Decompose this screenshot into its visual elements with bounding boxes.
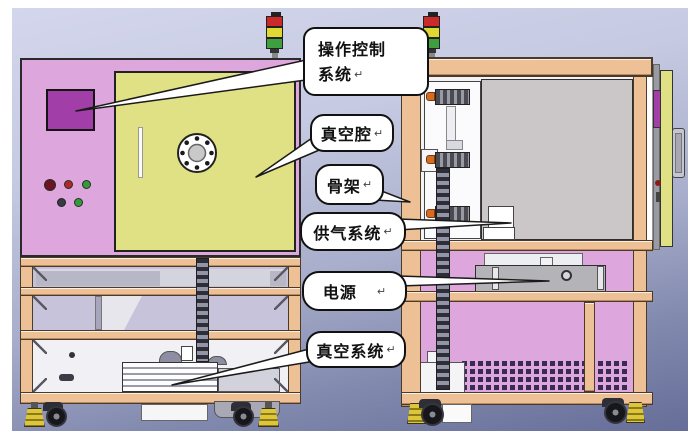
callout-text: 电源 [323,279,357,303]
return-mark: ↵ [363,178,372,191]
figure-machine-diagram: 操作控制 系统 ↵ 真空腔 ↵ 骨架 ↵ 供气系统 ↵ 电源 ↵ 真空系统 ↵ [0,0,697,438]
leader-power [399,276,549,286]
callout-control-system: 操作控制 系统 ↵ [303,27,429,96]
callout-vacuum-chamber: 真空腔 ↵ [310,114,394,152]
callout-frame: 骨架 ↵ [315,164,384,205]
return-mark: ↵ [354,62,363,87]
callout-text: 骨架 [327,173,361,197]
return-mark: ↵ [386,343,395,356]
viewport-flange [178,134,216,172]
leader-vacuum-system [172,349,309,385]
leader-control-system [76,60,306,111]
leader-gas-supply [398,219,511,230]
callout-text: 系统 [318,62,352,87]
callout-text: 真空系统 [316,338,384,362]
return-mark: ↵ [377,285,386,298]
callout-vacuum-system: 真空系统 ↵ [306,331,406,368]
callout-gas-supply: 供气系统 ↵ [300,212,406,251]
callout-text: 供气系统 [313,220,381,244]
return-mark: ↵ [374,127,383,140]
callout-power: 电源 ↵ [302,271,407,311]
callout-text: 真空腔 [321,121,372,145]
callout-text: 操作控制 [318,37,386,62]
return-mark: ↵ [383,225,392,238]
